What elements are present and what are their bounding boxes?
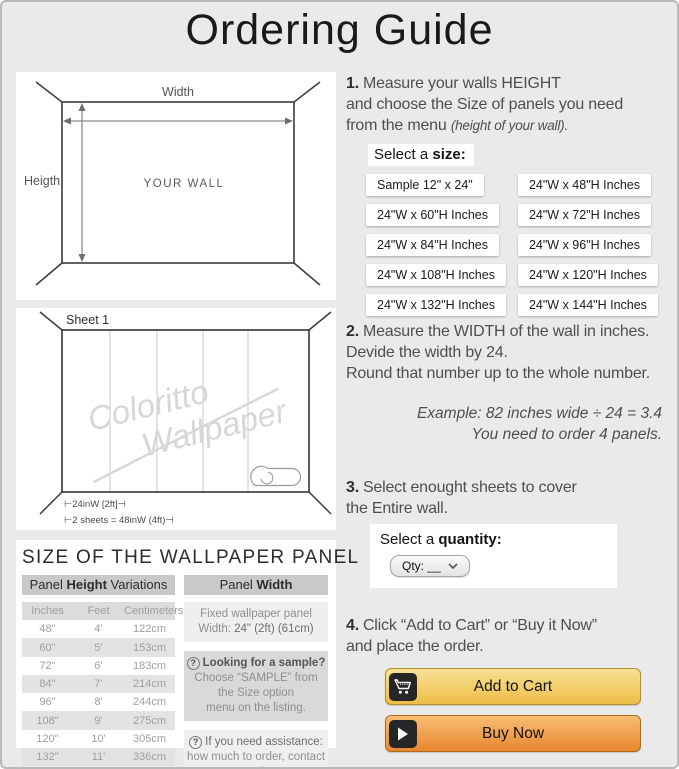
table-header-row: Inches Feet Centimeters xyxy=(22,602,175,620)
size-option-button[interactable]: 24"W x 120"H Inches xyxy=(518,264,658,286)
select-quantity-label: Select a quantity: xyxy=(380,531,617,548)
step-3: 3.Select enought sheets to cover the Ent… xyxy=(346,478,577,520)
table-row: 72" 6' 183cm xyxy=(22,657,175,675)
step-2: 2.Measure the WIDTH of the wall in inche… xyxy=(346,322,650,384)
size-option-button[interactable]: 24"W x 72"H Inches xyxy=(518,204,651,226)
page-title: Ordering Guide xyxy=(2,6,677,55)
example-calculation: Example: 82 inches wide ÷ 24 = 3.4 You n… xyxy=(417,404,662,446)
table-row: 132" 11' 336cm xyxy=(22,748,175,766)
wallpaper-roll-icon xyxy=(251,466,301,485)
panel-width-header: Panel Width xyxy=(184,575,328,595)
size-section-heading: SIZE OF THE WALLPAPER PANEL xyxy=(22,547,330,569)
cart-icon xyxy=(389,673,417,701)
sheet-label: Sheet 1 xyxy=(66,313,109,327)
size-option-button[interactable]: 24"W x 108"H Inches xyxy=(366,264,506,286)
size-option-button[interactable]: 24"W x 132"H Inches xyxy=(366,294,506,316)
your-wall-label: YOUR WALL xyxy=(144,178,225,190)
wall-diagram-panel: Width Heigth YOUR WALL xyxy=(16,72,336,300)
table-row: 84" 7' 214cm xyxy=(22,675,175,693)
height-label: Heigth xyxy=(24,174,60,188)
instructions-column: 1.Measure your walls HEIGHT and choose t… xyxy=(346,72,678,769)
fixed-width-note: Fixed wallpaper panel Width: 24" (2ft) (… xyxy=(184,602,328,642)
step-1: 1.Measure your walls HEIGHT and choose t… xyxy=(346,74,623,136)
measure-bottom-label: ⊢2 sheets = 48inW (4ft)⊣ xyxy=(64,515,174,526)
size-option-button[interactable]: 24"W x 84"H Inches xyxy=(366,234,499,256)
size-options-grid: Sample 12" x 24" 24"W x 48"H Inches 24"W… xyxy=(366,174,658,316)
width-label: Width xyxy=(162,85,194,99)
sample-note: ?Looking for a sample? Choose “SAMPLE” f… xyxy=(184,651,328,721)
measure-top-label: ⊢24inW [2ft]⊣ xyxy=(64,499,126,510)
question-icon: ? xyxy=(187,657,200,670)
wall-diagram: Width Heigth YOUR WALL xyxy=(16,72,336,300)
size-option-button[interactable]: 24"W x 144"H Inches xyxy=(518,294,658,316)
add-to-cart-button[interactable]: Add to Cart xyxy=(385,668,641,705)
ordering-guide-page: Ordering Guide Width Heigth YOUR WALL xyxy=(0,0,679,769)
size-option-button[interactable]: Sample 12" x 24" xyxy=(366,174,484,196)
size-option-button[interactable]: 24"W x 48"H Inches xyxy=(518,174,651,196)
table-row: 48" 4' 122cm xyxy=(22,620,175,638)
height-variations-header: Panel Height Variations xyxy=(22,575,175,595)
buy-now-button[interactable]: Buy Now xyxy=(385,715,641,752)
play-icon xyxy=(389,720,417,748)
assistance-note: ?If you need assistance: how much to ord… xyxy=(184,730,328,769)
quantity-box: Select a quantity: Qty: __ xyxy=(370,524,617,588)
sheet-diagram-panel: Sheet 1 Coloritto Wallpaper ⊢24inW [2ft]… xyxy=(16,308,336,530)
select-size-label: Select a size: xyxy=(368,144,474,166)
quantity-dropdown[interactable]: Qty: __ xyxy=(390,555,470,577)
table-row: 60" 5' 153cm xyxy=(22,638,175,656)
size-option-button[interactable]: 24"W x 96"H Inches xyxy=(518,234,651,256)
sheet-diagram: Sheet 1 Coloritto Wallpaper ⊢24inW [2ft]… xyxy=(16,308,336,530)
chevron-down-icon xyxy=(448,563,458,569)
panel-size-info: SIZE OF THE WALLPAPER PANEL Panel Height… xyxy=(16,540,336,748)
step-4: 4.Click “Add to Cart” or “Buy it Now” an… xyxy=(346,616,597,658)
question-icon: ? xyxy=(189,736,202,749)
height-variations-table: Inches Feet Centimeters 48" 4' 122cm 60"… xyxy=(22,602,175,769)
table-row: 108" 9' 275cm xyxy=(22,711,175,729)
size-option-button[interactable]: 24"W x 60"H Inches xyxy=(366,204,499,226)
table-row: 96" 8' 244cm xyxy=(22,693,175,711)
table-row: 120" 10' 305cm xyxy=(22,730,175,748)
